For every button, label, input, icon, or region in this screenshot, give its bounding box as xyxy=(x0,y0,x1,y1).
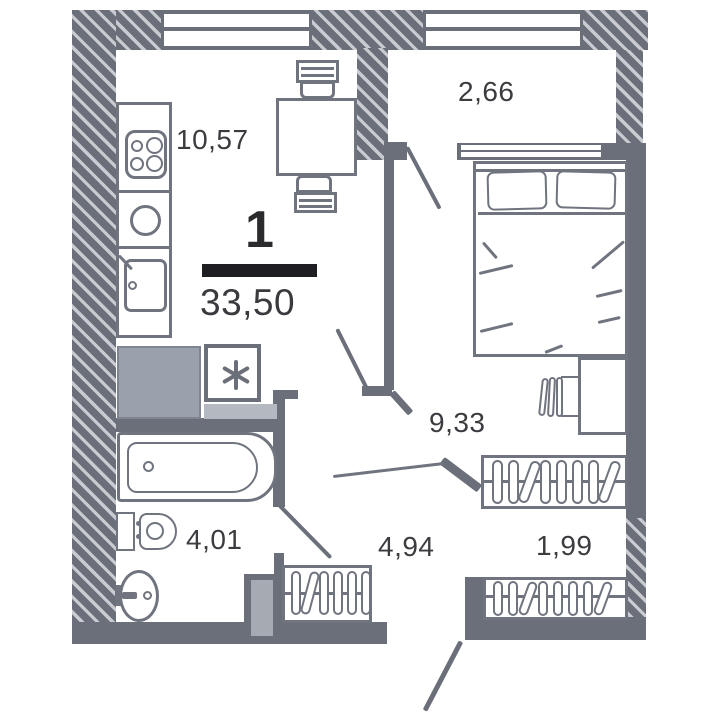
wall-balcony-right-hatched xyxy=(616,50,643,143)
chair-top-slat-2 xyxy=(301,74,334,77)
stove-icon xyxy=(125,130,167,179)
counter-strip xyxy=(204,404,277,419)
label-rooms-count: 1 xyxy=(202,200,317,260)
chair-top-slat-1 xyxy=(301,67,334,70)
hanger xyxy=(572,460,583,504)
wall-kitchen-bathroom xyxy=(116,418,285,432)
window-balcony-pane-1 xyxy=(426,14,580,27)
wall-left-hatched xyxy=(72,10,116,640)
chair-bottom-seat xyxy=(296,175,332,193)
door-swing-bathroom xyxy=(278,504,333,560)
washbasin-drain xyxy=(143,591,152,600)
window-balcony-to-room-pane-1 xyxy=(461,145,601,150)
wall-divider-diagonal xyxy=(389,390,413,415)
wall-bottom-right xyxy=(465,617,646,640)
door-swing-entrance xyxy=(423,640,464,711)
hanger xyxy=(583,581,593,616)
desk-chair-bar-3 xyxy=(556,377,563,417)
kitchen-counter-divider-1 xyxy=(119,190,169,193)
hanger xyxy=(333,571,343,615)
wall-chamfer-closet xyxy=(439,457,482,492)
label-balcony-area: 2,66 xyxy=(458,76,515,108)
hanger xyxy=(347,571,357,615)
stove-burner-large-1 xyxy=(146,137,163,154)
wall-top-segment-right xyxy=(583,10,648,50)
window-balcony-to-room xyxy=(457,143,607,160)
hanger xyxy=(319,571,329,615)
hanger xyxy=(540,460,551,504)
window-kitchen xyxy=(161,10,312,50)
washing-machine-slot xyxy=(117,346,201,419)
wall-right-solid xyxy=(626,158,646,518)
hanger xyxy=(556,460,567,504)
hanger xyxy=(508,581,518,616)
kitchen-counter-divider-2 xyxy=(119,246,169,249)
bathtub-drain xyxy=(143,461,154,472)
toilet-tank xyxy=(116,512,135,551)
hanger xyxy=(538,581,548,616)
label-room-area: 9,33 xyxy=(429,407,486,439)
wall-bottom-left xyxy=(72,622,387,644)
hanger xyxy=(553,581,563,616)
stove-burner-large-2 xyxy=(146,155,163,172)
bed-pillow-1 xyxy=(486,170,547,211)
desk-chair-seat xyxy=(561,376,581,417)
wall-top-segment-middle xyxy=(312,10,423,50)
hanger xyxy=(492,460,503,504)
stove-burner-medium xyxy=(130,157,144,171)
zone-divider-line xyxy=(333,462,445,478)
hanger xyxy=(361,571,371,615)
bed-blanket-line xyxy=(478,212,625,215)
hanger xyxy=(493,581,503,616)
chair-top-back xyxy=(296,60,339,83)
wall-stub-balcony-right xyxy=(603,143,646,160)
window-balcony xyxy=(423,10,583,50)
duct-fill xyxy=(251,580,273,636)
label-total-area: 33,50 xyxy=(200,282,295,324)
label-kitchen-area: 10,57 xyxy=(176,124,249,156)
washbasin-faucet-v xyxy=(115,585,122,606)
hanger xyxy=(568,581,578,616)
chair-top-seat xyxy=(300,81,335,99)
desk-icon xyxy=(578,357,628,435)
summary-divider-bar xyxy=(202,264,317,277)
wall-entry-right-vertical xyxy=(465,577,483,617)
window-balcony-pane-2 xyxy=(426,31,580,46)
prep-sink-drain xyxy=(128,281,137,290)
window-kitchen-pane-2 xyxy=(164,31,309,46)
dining-table-icon xyxy=(276,98,357,176)
window-balcony-to-room-pane-2 xyxy=(461,152,601,157)
wall-divider-kitchen-room xyxy=(384,158,394,390)
bed-pillow-2 xyxy=(556,170,617,210)
floor-plan: 10,57 2,66 9,33 4,01 4,94 1,99 1 33,50 xyxy=(0,0,720,720)
washing-machine-icon xyxy=(204,344,261,402)
desk-chair-bar-2 xyxy=(547,377,556,417)
wall-top-segment-left xyxy=(116,10,161,50)
label-bathroom-area: 4,01 xyxy=(186,524,243,556)
label-wardrobe-area: 1,99 xyxy=(536,530,593,562)
kitchen-sink-icon xyxy=(130,205,161,236)
window-kitchen-pane-1 xyxy=(164,14,309,27)
door-swing-kitchen xyxy=(335,328,369,391)
toilet-bowl-inner xyxy=(146,522,164,540)
label-hallway-area: 4,94 xyxy=(378,531,435,563)
washbasin-faucet-h xyxy=(122,592,137,599)
stove-burner-small xyxy=(131,140,143,152)
door-swing-balcony xyxy=(405,146,441,210)
